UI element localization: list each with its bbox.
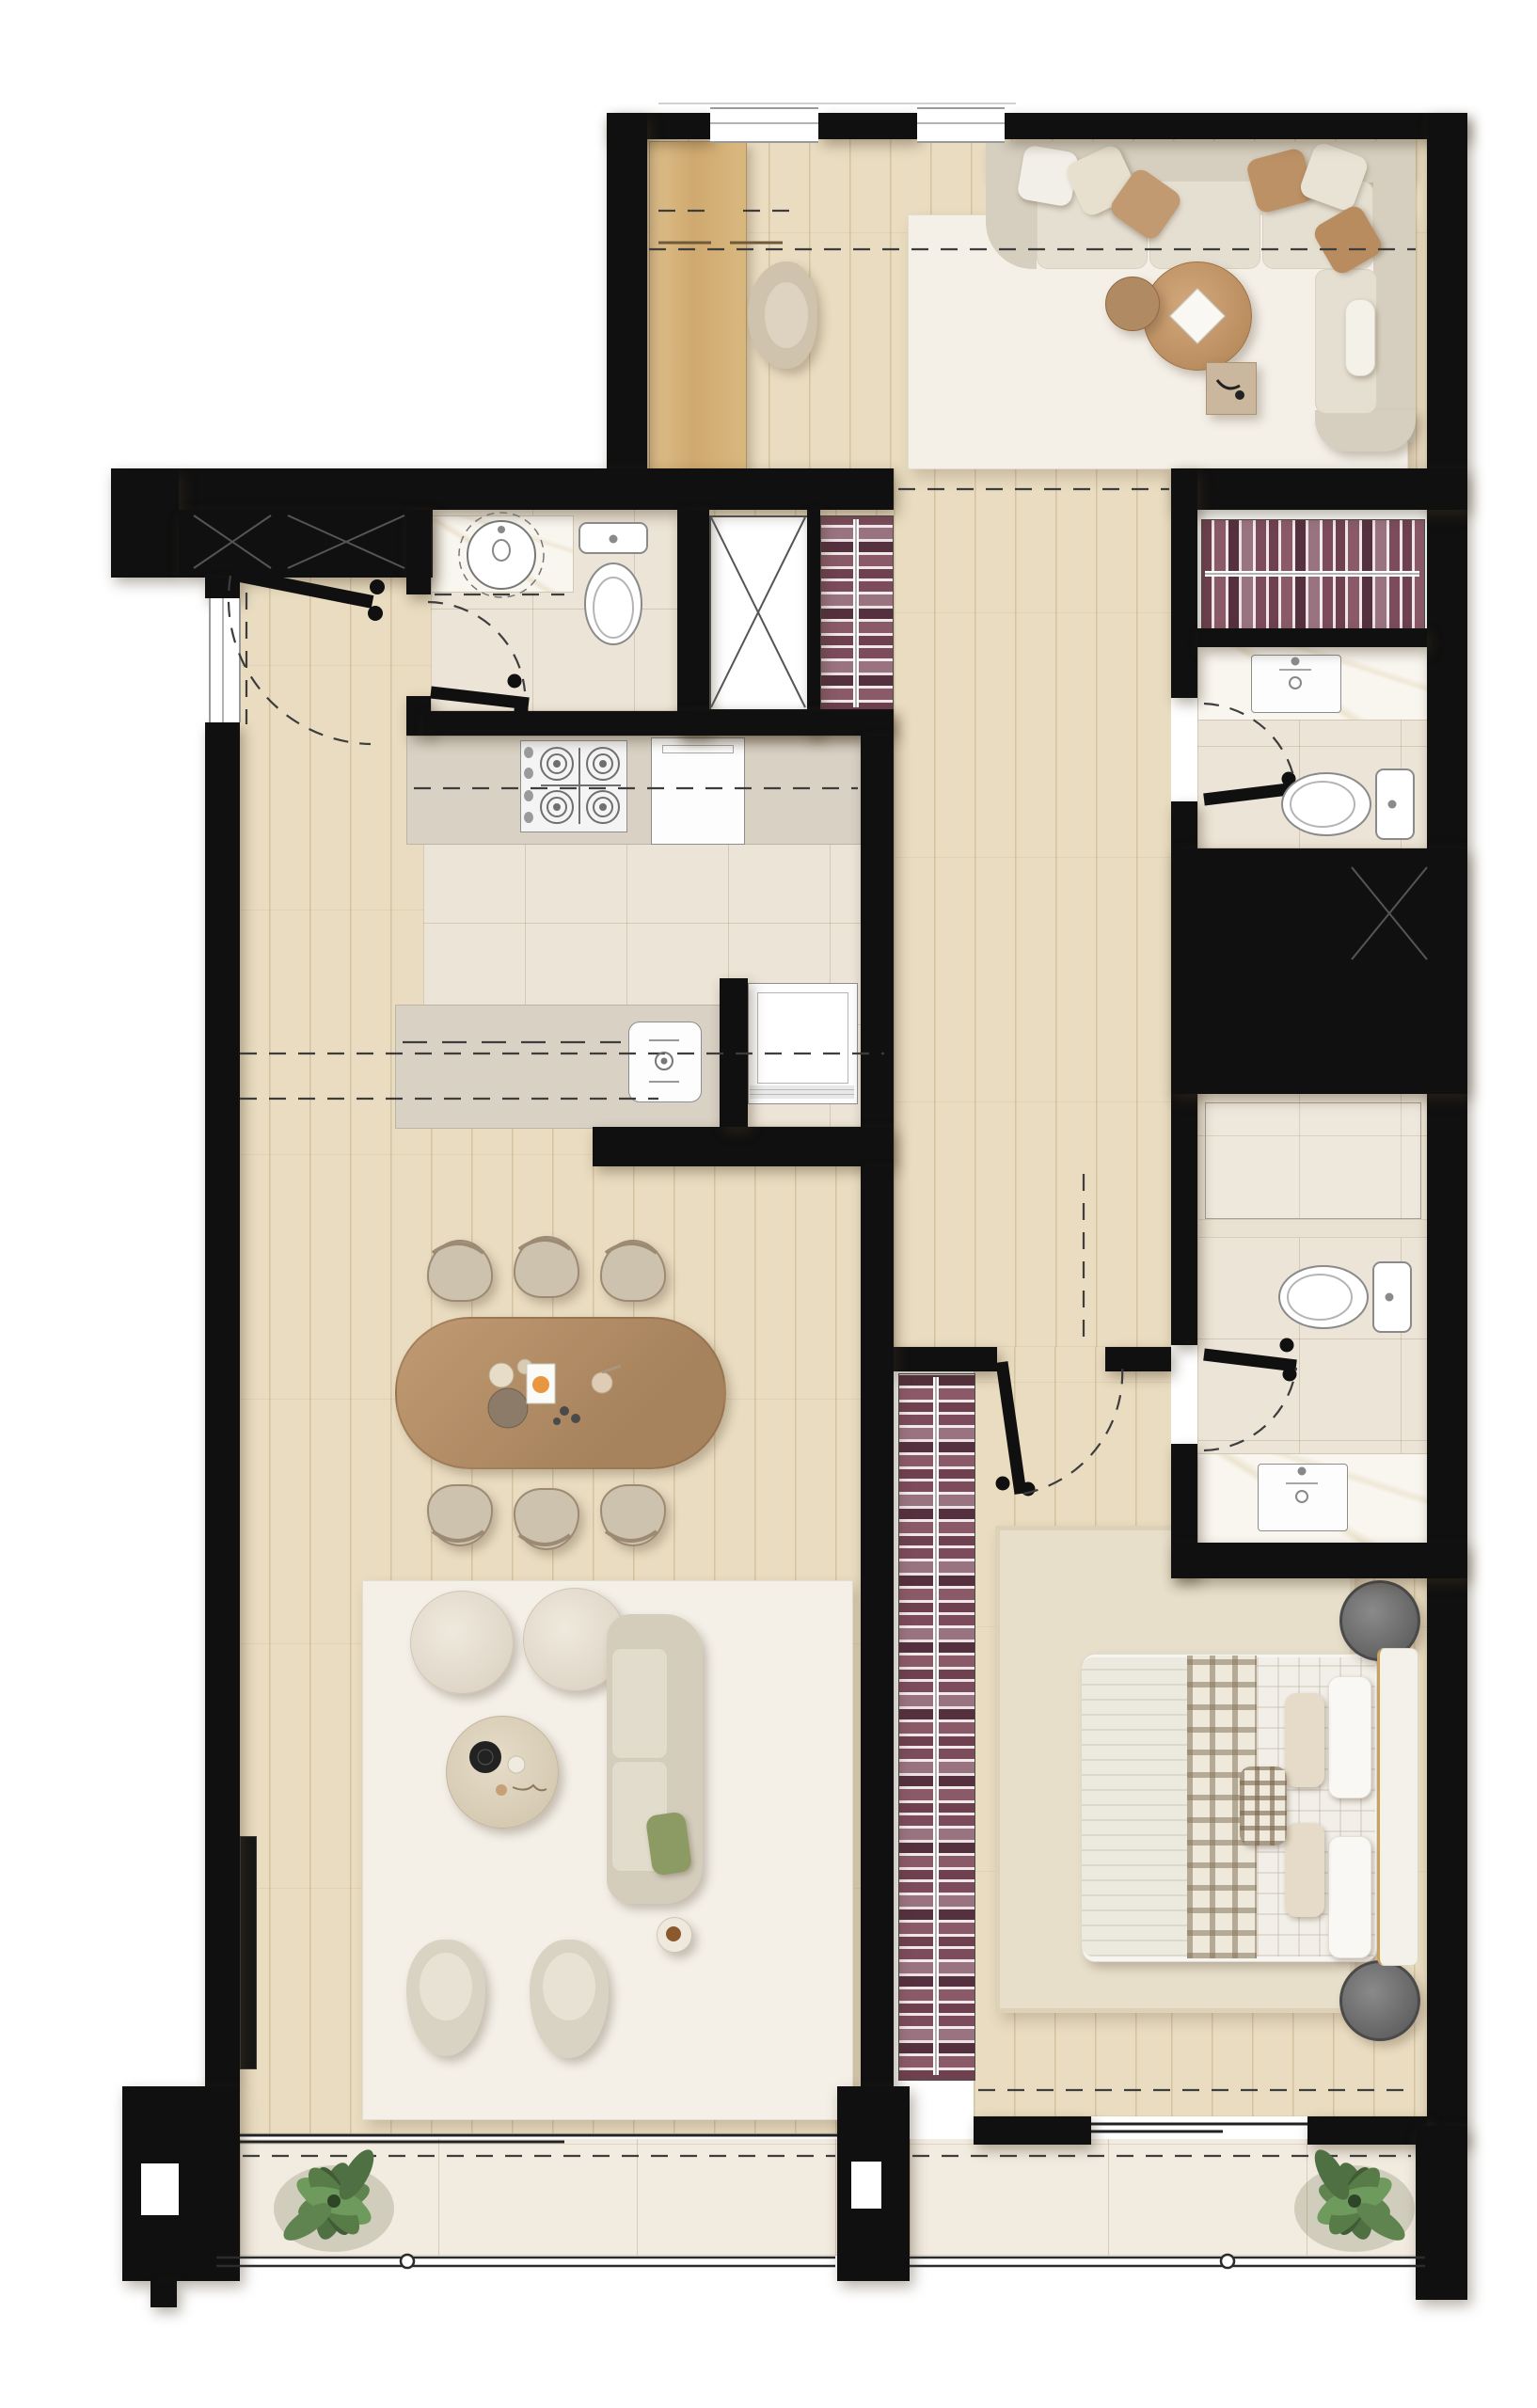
doors (229, 574, 1299, 1497)
floor-plan (0, 0, 1537, 2408)
toilet-powder (579, 523, 647, 644)
kitchen-faucet (649, 1040, 679, 1082)
entry-door (229, 574, 385, 744)
dashed-section-lines (240, 211, 1416, 2156)
dining-table-decor (488, 1359, 621, 1428)
powder-room-door (428, 602, 529, 718)
potted-plant-bedroom-balcony (1294, 2145, 1415, 2252)
side-table-decor (666, 380, 1244, 1941)
bedroom-door (996, 1362, 1123, 1497)
potted-plant-living-balcony (274, 2145, 394, 2252)
toilet-bathroom2 (1279, 1262, 1411, 1332)
bathroom2-door (1204, 1339, 1297, 1451)
plan-linework (0, 0, 1537, 2408)
powder-sink-round (459, 513, 544, 597)
toilet-bathroom1 (1282, 769, 1414, 839)
sliding-doors (240, 2124, 1307, 2142)
balcony-railing (216, 2255, 1425, 2268)
cooktop-burners (524, 747, 621, 824)
cooktop-knobs (524, 747, 533, 823)
coffee-table-decor (469, 1741, 547, 1796)
